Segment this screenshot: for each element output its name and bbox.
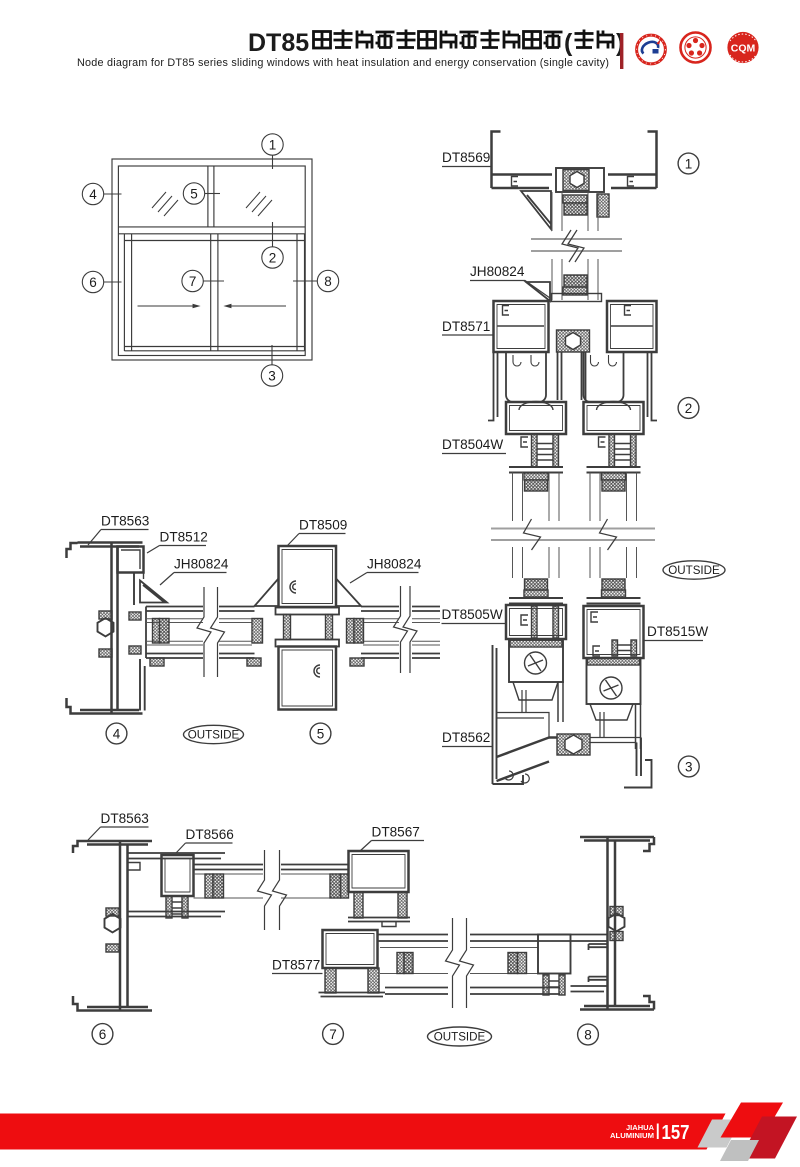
svg-text:DT8515W: DT8515W bbox=[647, 624, 708, 639]
svg-text:4: 4 bbox=[113, 726, 121, 741]
svg-text:DT8566: DT8566 bbox=[186, 827, 234, 842]
svg-text:8: 8 bbox=[324, 274, 332, 289]
svg-text:1: 1 bbox=[269, 137, 277, 152]
svg-text:Node diagram for DT85 seri: Node diagram for DT85 series sliding win… bbox=[77, 57, 609, 69]
svg-text:(: ( bbox=[564, 29, 573, 57]
svg-text:JH80824: JH80824 bbox=[367, 557, 422, 572]
svg-text:3: 3 bbox=[685, 759, 693, 774]
svg-text:DT8504W: DT8504W bbox=[442, 437, 503, 452]
svg-text:1: 1 bbox=[685, 156, 693, 171]
svg-text:OUTSIDE: OUTSIDE bbox=[668, 564, 720, 577]
svg-text:7: 7 bbox=[189, 274, 197, 289]
svg-text:2: 2 bbox=[685, 401, 693, 416]
svg-text:DT8563: DT8563 bbox=[101, 811, 149, 826]
svg-text:OUTSIDE: OUTSIDE bbox=[434, 1031, 486, 1044]
svg-text:7: 7 bbox=[329, 1027, 337, 1042]
svg-text:DT8563: DT8563 bbox=[101, 514, 149, 529]
svg-text:8: 8 bbox=[584, 1027, 592, 1042]
svg-text:DT85: DT85 bbox=[248, 29, 309, 57]
svg-text:DT8512: DT8512 bbox=[160, 530, 208, 545]
svg-text:DT8571: DT8571 bbox=[442, 319, 490, 334]
svg-text:DT8577: DT8577 bbox=[272, 958, 320, 973]
svg-text:ALUMINIUM: ALUMINIUM bbox=[610, 1131, 654, 1140]
svg-text:DT8509: DT8509 bbox=[299, 518, 347, 533]
svg-text:DT8567: DT8567 bbox=[372, 825, 420, 840]
svg-text:5: 5 bbox=[317, 726, 325, 741]
svg-text:CQM: CQM bbox=[731, 43, 756, 55]
svg-text:DT8505W: DT8505W bbox=[442, 607, 503, 622]
svg-text:6: 6 bbox=[89, 275, 97, 290]
svg-text:2: 2 bbox=[269, 250, 277, 265]
svg-text:6: 6 bbox=[99, 1027, 107, 1042]
svg-text:157: 157 bbox=[662, 1122, 690, 1144]
svg-text:OUTSIDE: OUTSIDE bbox=[188, 729, 240, 742]
svg-text:DT8569: DT8569 bbox=[442, 150, 490, 165]
svg-text:5: 5 bbox=[190, 186, 198, 201]
svg-text:4: 4 bbox=[89, 187, 97, 202]
svg-text:JH80824: JH80824 bbox=[470, 264, 525, 279]
svg-text:DT8562: DT8562 bbox=[442, 730, 490, 745]
svg-text:3: 3 bbox=[268, 368, 276, 383]
svg-text:JH80824: JH80824 bbox=[174, 557, 229, 572]
